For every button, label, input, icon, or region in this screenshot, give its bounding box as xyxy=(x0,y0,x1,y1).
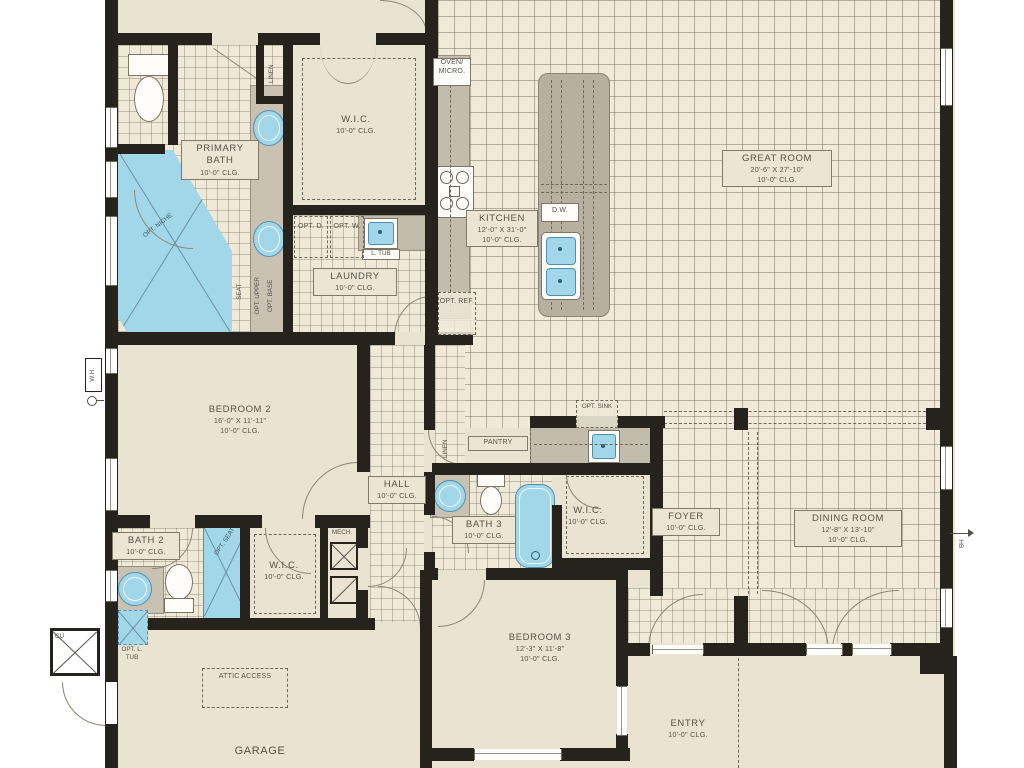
room-clg: 10'-0" CLG. xyxy=(798,535,898,544)
bedroom3-label: BEDROOM 3 12'-3" X 11'-8" 10'-0" CLG. xyxy=(462,632,618,663)
opt-d-text: OPT. D. xyxy=(298,223,324,230)
window xyxy=(106,107,117,148)
opt-laundry-tub xyxy=(118,610,148,645)
cu-text: CU xyxy=(55,633,64,640)
seat-text: SEAT xyxy=(236,284,243,300)
wall-bedroom2-bottom xyxy=(105,515,150,528)
opt-upper-label: OPT. UPPER xyxy=(254,271,262,321)
seat-label: SEAT xyxy=(236,274,244,310)
cooktop-burner xyxy=(440,197,453,210)
opt-base-label: OPT. BASE xyxy=(267,271,275,321)
room-name: W.I.C. xyxy=(318,114,394,126)
window xyxy=(617,686,627,736)
opt-sink-basin xyxy=(588,430,620,463)
bath2-toilet-bowl xyxy=(165,564,193,600)
primary-bath-label: PRIMARY BATH 10'-0" CLG. xyxy=(181,140,259,180)
room-clg: 10'-0" CLG. xyxy=(462,654,618,663)
room-name: GREAT ROOM xyxy=(726,153,828,165)
window xyxy=(806,644,843,655)
island-seam-line xyxy=(541,184,607,185)
opt-seat-text: OPT. SEAT xyxy=(213,527,237,557)
wic-primary-label: W.I.C. 10'-0" CLG. xyxy=(318,114,394,136)
wall-bedroom2-bottom xyxy=(315,515,370,528)
room-name: GARAGE xyxy=(200,744,320,758)
room-clg: 10'-0" CLG. xyxy=(726,175,828,184)
room-name: ENTRY xyxy=(648,718,728,730)
wall-front-bottom xyxy=(620,643,650,656)
wall-linen1-bottom xyxy=(256,96,292,104)
bath3-sink-inner xyxy=(439,485,461,507)
wic2-label: W.I.C. 10'-0" CLG. xyxy=(250,560,318,582)
hose-bib-left-icon xyxy=(87,396,97,406)
room-name: KITCHEN xyxy=(470,213,534,225)
laundry-tub xyxy=(364,218,398,249)
room-dims: 12'-3" X 11'-8" xyxy=(462,644,618,653)
room-name: W.I.C. xyxy=(250,560,318,572)
toilet-tank xyxy=(128,54,170,76)
room-clg: 10'-0" CLG. xyxy=(318,126,394,135)
wall-entry-right xyxy=(920,656,957,674)
wall-bedroom2-bottom xyxy=(195,515,262,528)
wall-front-bottom xyxy=(703,643,806,656)
dining-room-label: DINING ROOM 12'-8" X 13'-10" 10'-0" CLG. xyxy=(794,510,902,547)
wall-bath2-wic2 xyxy=(240,528,250,620)
laundry-label: LAUNDRY 10'-0" CLG. xyxy=(313,268,397,296)
room-clg: 10'-0" CLG. xyxy=(160,426,320,435)
mech-diag-line xyxy=(332,578,357,603)
wall-stub-great-dining xyxy=(734,408,748,430)
hose-bib-arrowhead xyxy=(968,529,974,537)
hall-label: HALL 10'-0" CLG. xyxy=(368,476,426,504)
island-seam-line xyxy=(541,192,607,193)
oven-micro-label: OVEN/ MICRO. xyxy=(433,58,471,86)
wall-mech-right xyxy=(356,590,368,620)
l-tub-text: L. TUB xyxy=(371,250,390,257)
water-heater: W.H. xyxy=(85,358,102,392)
garage-label: GARAGE xyxy=(200,744,320,758)
hose-bib-left-stem xyxy=(96,400,104,401)
bath3-toilet-bowl xyxy=(480,486,502,515)
room-name: BATH 2 xyxy=(116,535,176,547)
opt-washer-box: OPT. W. xyxy=(330,216,364,258)
window xyxy=(106,161,117,198)
window xyxy=(106,348,117,374)
foyer-label: FOYER 10'-0" CLG. xyxy=(652,508,720,536)
room-dims: 20'-6" X 27'-10" xyxy=(726,165,828,174)
opt-l-tub-label: OPT. L. TUB xyxy=(116,646,148,661)
room-name: W.I.C. xyxy=(556,505,620,517)
cu-label: CU xyxy=(55,633,73,641)
bath2-toilet-tank xyxy=(164,598,194,613)
linen-text: LINEN xyxy=(268,65,275,84)
kitchen-sink xyxy=(541,232,581,300)
wall-wic-laundry xyxy=(288,205,430,215)
hose-bib-right-label: HB xyxy=(956,536,964,552)
wall-bedroom3-bottom xyxy=(560,748,630,761)
bath2-sink-inner xyxy=(123,577,147,601)
attic-access-box: ATTIC ACCESS xyxy=(202,668,288,708)
bedroom2-label: BEDROOM 2 16'-0" X 11'-11" 10'-0" CLG. xyxy=(160,404,320,435)
foyer-dining-divider xyxy=(757,432,758,594)
door-arc-garage-service xyxy=(62,682,106,726)
wall-bedroom2-right xyxy=(357,345,370,472)
opt-sink-label: OPT. SINK xyxy=(576,400,618,428)
bath3-label: BATH 3 10'-0" CLG. xyxy=(452,516,516,544)
hb-text: HB xyxy=(957,539,964,548)
wall-top-left xyxy=(105,33,212,45)
room-clg: 10'-0" CLG. xyxy=(116,547,176,556)
opt-ref-box: OPT. REF. xyxy=(438,292,476,335)
cooktop-burner xyxy=(440,171,453,184)
island-detail-line xyxy=(583,80,584,310)
bath3-tub-drain xyxy=(531,551,540,560)
kitchen-label: KITCHEN 12'-0" X 31'-0" 10'-0" CLG. xyxy=(466,210,538,247)
garage-side-door-opening xyxy=(106,682,117,724)
pantry-text: PANTRY xyxy=(484,439,513,446)
window xyxy=(474,749,562,760)
room-name: BATH 3 xyxy=(456,519,512,531)
room-name: DINING ROOM xyxy=(798,513,898,525)
linen2-label: LINEN xyxy=(442,429,450,469)
room-name: BEDROOM 2 xyxy=(160,404,320,416)
window xyxy=(106,458,117,511)
entry-label: ENTRY 10'-0" CLG. xyxy=(648,718,728,740)
wall-kitchen-left xyxy=(425,0,438,345)
room-name: BEDROOM 3 xyxy=(462,632,618,644)
dishwasher-label: D.W. xyxy=(541,203,579,222)
great-room-dining-beam xyxy=(664,411,926,412)
bath2-label: BATH 2 10'-0" CLG. xyxy=(112,532,180,560)
linen-text: LINEN xyxy=(442,440,449,459)
front-door-threshold xyxy=(652,645,704,654)
kitchen-counter-centerline xyxy=(450,60,451,312)
wall-stub-great-dining xyxy=(926,408,940,430)
wall-wic3-bottom xyxy=(552,558,652,570)
wh-text: W.H. xyxy=(89,368,96,382)
dw-text: D.W. xyxy=(552,207,568,214)
room-clg: 10'-0" CLG. xyxy=(656,523,716,532)
drop-zone-centerline xyxy=(534,444,648,445)
great-room-label: GREAT ROOM 20'-6" X 27'-10" 10'-0" CLG. xyxy=(722,150,832,187)
linen1-label: LINEN xyxy=(268,54,276,94)
condenser-unit: CU xyxy=(50,628,100,676)
hose-bib-arrow xyxy=(950,533,970,534)
opt-upper-text: OPT. UPPER xyxy=(254,277,261,314)
wall-stub-foyer-dining xyxy=(734,596,748,650)
opt-w-text: OPT. W. xyxy=(333,223,360,230)
room-name: PRIMARY BATH xyxy=(185,143,255,168)
opt-sink-text: OPT. SINK xyxy=(582,403,612,410)
wall-wic2-mech xyxy=(320,528,328,620)
window xyxy=(941,446,952,490)
kitchen-sink-basin xyxy=(546,237,576,265)
island-detail-line xyxy=(593,80,594,310)
opt-base-text: OPT. BASE xyxy=(267,280,274,313)
wall-front-bottom xyxy=(890,643,953,656)
room-clg: 10'-0" CLG. xyxy=(470,235,534,244)
pantry-front-dash xyxy=(530,428,531,464)
room-dims: 16'-0" X 11'-11" xyxy=(160,416,320,425)
room-clg: 10'-0" CLG. xyxy=(250,572,318,581)
wall-vanity-wic xyxy=(283,45,293,335)
window xyxy=(106,570,117,602)
room-clg: 10'-0" CLG. xyxy=(648,730,728,739)
great-room-dining-beam xyxy=(664,423,926,424)
window xyxy=(852,644,892,655)
pantry-label: PANTRY xyxy=(468,436,528,451)
room-dims: 12'-8" X 13'-10" xyxy=(798,525,898,534)
wall-garage-bedroom3 xyxy=(420,570,432,768)
primary-sink-2-inner xyxy=(258,226,280,252)
window xyxy=(106,216,117,286)
wall-linen1-left xyxy=(256,45,264,100)
room-name: FOYER xyxy=(656,511,716,523)
wic3-label: W.I.C. 10'-0" CLG. xyxy=(556,505,620,527)
room-clg: 10'-0" CLG. xyxy=(556,517,620,526)
sink-drain xyxy=(558,279,562,283)
wall-bedroom3-bottom xyxy=(420,748,474,761)
wall-hall-bath3 xyxy=(424,345,435,430)
primary-sink-1-inner xyxy=(258,115,280,141)
window xyxy=(941,588,952,628)
attic-access-text: ATTIC ACCESS xyxy=(219,673,271,680)
room-clg: 10'-0" CLG. xyxy=(317,283,393,292)
wall-bath3-top xyxy=(432,463,654,475)
l-tub-label: L. TUB xyxy=(362,249,400,260)
mech-text: MECH. xyxy=(332,529,352,536)
room-clg: 10'-0" CLG. xyxy=(372,491,422,500)
room-clg: 10'-0" CLG. xyxy=(456,531,512,540)
sink-drain xyxy=(558,247,562,251)
wall-entry-right xyxy=(944,674,957,768)
foyer-dining-divider xyxy=(748,432,749,594)
sink-drain xyxy=(378,230,382,234)
oven-micro-text: OVEN/ MICRO. xyxy=(439,59,465,75)
cooktop-burner xyxy=(456,171,469,184)
room-dims: 12'-0" X 31'-0" xyxy=(470,225,534,234)
entry-divider xyxy=(738,658,739,768)
wall-primary-bath-bottom xyxy=(105,332,395,345)
wall-bedroom3-right xyxy=(616,570,628,686)
opt-dryer-box: OPT. D. xyxy=(294,216,328,258)
cooktop-burner xyxy=(456,197,469,210)
room-name: LAUNDRY xyxy=(317,271,393,283)
wall-top-left xyxy=(258,33,320,45)
room-clg: 10'-0" CLG. xyxy=(185,168,255,177)
bath3-tub xyxy=(515,484,555,568)
room-name: HALL xyxy=(372,479,422,491)
bath3-toilet-tank xyxy=(477,473,505,487)
mech-upper-box xyxy=(330,542,358,570)
opt-ref-text: OPT. REF. xyxy=(440,298,474,305)
mech-lower-box xyxy=(330,576,358,604)
opt-l-tub-text: OPT. L. TUB xyxy=(122,646,143,661)
wall-bedroom3-top xyxy=(432,568,438,580)
window xyxy=(941,48,952,106)
floor-plan: OVEN/ MICRO. OPT. REF. D.W. OPT. SINK xyxy=(0,0,1024,768)
wall-toilet-room xyxy=(168,45,178,145)
wh-label: W.H. xyxy=(89,359,97,391)
mech-label: MECH. xyxy=(318,529,366,537)
toilet-bowl xyxy=(134,76,164,122)
